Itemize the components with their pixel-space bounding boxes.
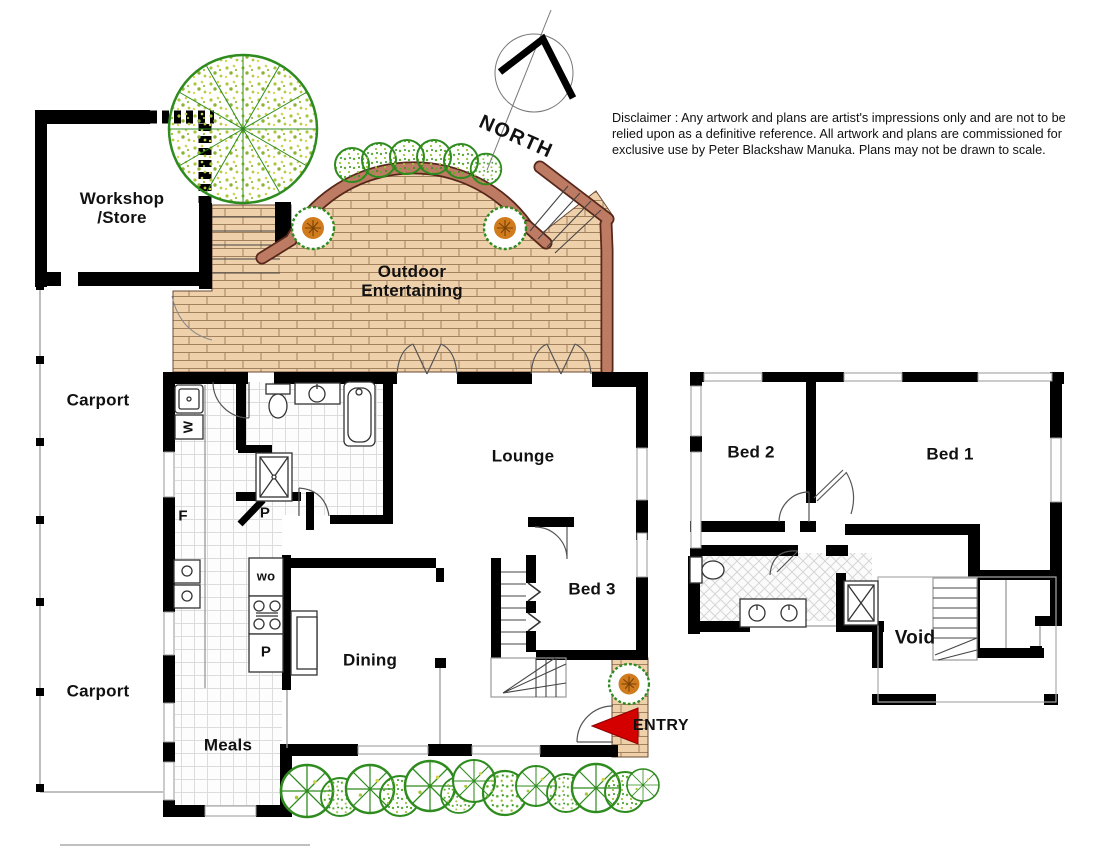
room-label-meals: Meals: [204, 735, 252, 754]
large-tree-icon: [169, 55, 317, 203]
shower-icon: [256, 453, 292, 501]
sideboard-icon: [291, 611, 317, 675]
fixture-label-washing-machine: W: [182, 421, 197, 433]
upper-floor-plan: [688, 372, 1064, 705]
room-label-carport-upper: Carport: [67, 390, 130, 409]
room-label-lounge: Lounge: [492, 446, 555, 465]
cooktop-icon: [249, 596, 283, 634]
room-label-dining: Dining: [343, 650, 397, 669]
fixture-label-pantry-lower: P: [261, 645, 271, 662]
vanity-icon: [740, 599, 806, 627]
room-label-bed2: Bed 2: [727, 442, 774, 461]
room-label-bed1: Bed 1: [926, 444, 973, 463]
disclaimer-text: Disclaimer : Any artwork and plans are a…: [612, 110, 1072, 158]
upper-shower-icon: [844, 581, 878, 625]
room-label-bed3: Bed 3: [568, 579, 615, 598]
basin-icon: [295, 383, 340, 404]
room-label-void: Void: [895, 627, 936, 648]
fixture-label-wall-oven: wo: [257, 570, 275, 585]
room-label-outdoor-entertaining: Outdoor Entertaining: [361, 262, 463, 300]
entry-label: ENTRY: [633, 717, 689, 735]
room-label-workshop: Workshop /Store: [80, 189, 164, 227]
bathtub-icon: [344, 382, 375, 446]
room-label-carport-lower: Carport: [67, 681, 130, 700]
upper-floor-stairs: [933, 578, 977, 660]
floor-plan-page: Disclaimer : Any artwork and plans are a…: [0, 0, 1095, 853]
fixture-label-pantry-upper: P: [260, 506, 270, 523]
laundry-tub-icon: [175, 385, 203, 413]
front-hedge: [281, 760, 659, 817]
fixture-label-fridge: F: [178, 509, 187, 526]
